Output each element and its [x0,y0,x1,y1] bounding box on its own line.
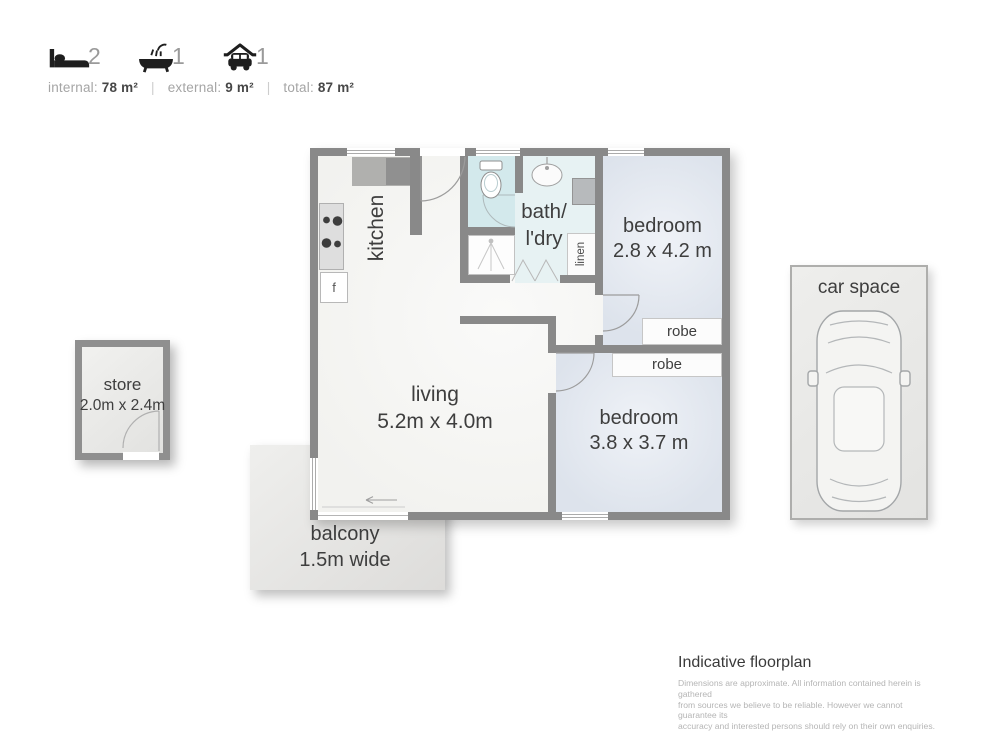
living-window [310,458,318,510]
disclaimer-line: Dimensions are approximate. All informat… [678,678,940,700]
balcony-sliding-door [318,512,408,520]
car-count: 1 [256,43,269,70]
bedroom-1-label: bedroom 2.8 x 4.2 m [603,214,722,264]
wall-hall-south [460,316,548,324]
balcony-label: balcony [250,523,440,546]
separator: | [267,80,271,95]
garage-icon [222,42,258,73]
bath-count: 1 [172,43,185,70]
living-label: living 5.2m x 4.0m [340,381,530,435]
external-area-label: external: [168,80,222,95]
toilet-window [476,148,520,156]
car-top-view-icon [792,303,926,518]
disclaimer-line: from sources we believe to be reliable. … [678,700,940,722]
robe-2-label: robe [612,353,722,377]
kitchen-label: kitchen [365,195,389,262]
kitchen-window [347,148,395,156]
total-area-value: 87 m² [318,80,354,95]
balcony-dimensions: 1.5m wide [250,549,440,572]
wall-bedroom1-left-stub [595,335,603,345]
wall-bath-bottom-left [460,275,510,283]
bedroom2-window [562,512,608,520]
stove-cooktop [319,203,344,270]
bedroom1-window [608,148,644,156]
area-summary: internal: 78 m² | external: 9 m² | total… [48,80,354,95]
total-area-label: total: [283,80,313,95]
bath-label-line1: bath/ [498,198,590,225]
wall-toilet-right [515,156,523,193]
footer-title: Indicative floorplan [678,654,811,672]
footer-disclaimer: Dimensions are approximate. All informat… [678,678,940,732]
bedroom-2-label: bedroom 3.8 x 3.7 m [556,406,722,456]
robe-1-label: robe [642,318,722,345]
bedroom-1-name: bedroom [603,214,722,239]
bedroom-2-dimensions: 3.8 x 3.7 m [556,431,722,456]
car-space: car space [790,265,928,520]
fridge-label: f [320,272,348,303]
store-room: store 2.0m x 2.4m [75,340,170,460]
external-area-value: 9 m² [225,80,254,95]
wall-bedroom2-left-top [548,316,556,353]
wall-bedroom1-left [595,156,603,295]
internal-area-value: 78 m² [102,80,138,95]
car-space-label: car space [792,277,926,299]
bed-count: 2 [88,43,101,70]
wall-bath-left [460,156,468,283]
internal-area-label: internal: [48,80,98,95]
living-dimensions: 5.2m x 4.0m [340,408,530,435]
bed-icon [48,46,90,73]
separator: | [151,80,155,95]
bedroom-1-dimensions: 2.8 x 4.2 m [603,239,722,264]
bedroom-2-name: bedroom [556,406,722,431]
living-name: living [340,381,530,408]
bath-icon [137,42,175,74]
linen-label: linen [575,242,587,266]
kitchen-sink-unit [386,158,412,185]
wall-bedrooms-divider [548,345,722,353]
wall-bedroom2-left [548,393,556,512]
floorplan-page: 2 1 1 internal: [0,0,1000,733]
apartment-unit: kitchen bath/ l'dry linen f bedroom 2.8 … [310,148,730,520]
disclaimer-line: accuracy and interested persons should r… [678,721,940,732]
store-door-icon [75,340,170,460]
entry-door-opening [420,148,465,156]
wall-kitchen-stub [410,156,422,235]
